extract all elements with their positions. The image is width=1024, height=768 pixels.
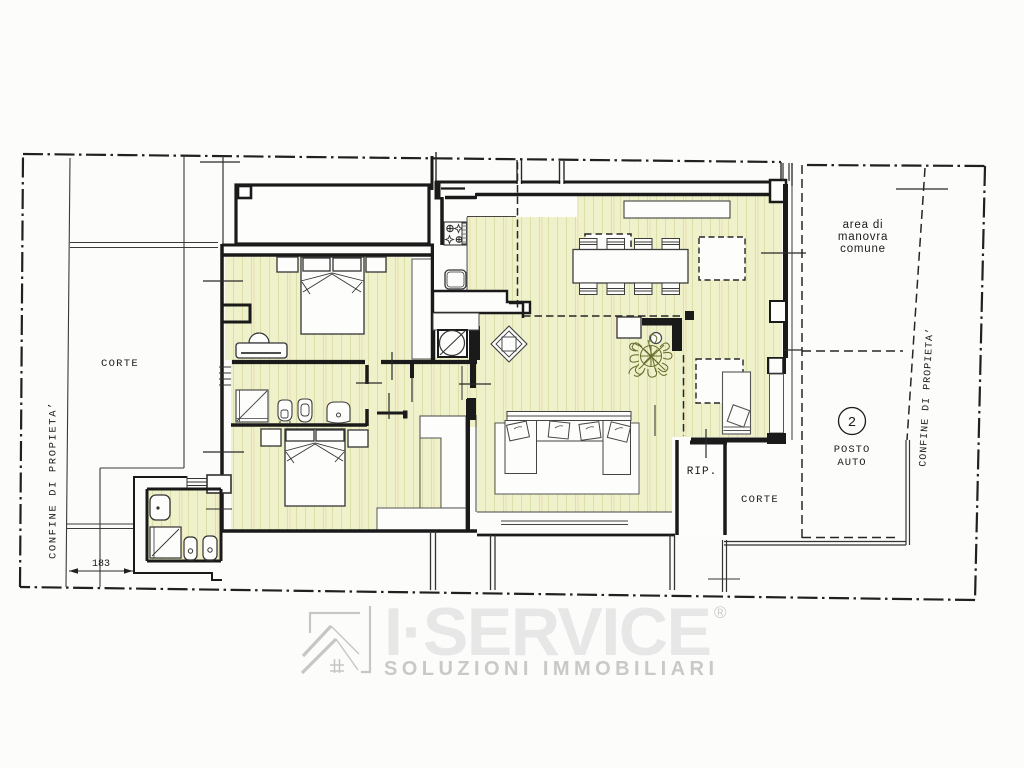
svg-text:CONFINE DI PROPIETA’: CONFINE DI PROPIETA’ bbox=[48, 401, 60, 559]
svg-text:POSTO: POSTO bbox=[834, 444, 871, 456]
svg-text:AUTO: AUTO bbox=[837, 457, 866, 469]
svg-text:comune: comune bbox=[840, 243, 886, 255]
svg-text:2: 2 bbox=[848, 415, 856, 431]
svg-text:183: 183 bbox=[92, 559, 110, 570]
svg-text:manovra: manovra bbox=[838, 231, 888, 243]
svg-text:RIP.: RIP. bbox=[687, 466, 717, 478]
svg-text:®: ® bbox=[714, 603, 727, 622]
svg-text:CORTE: CORTE bbox=[741, 494, 779, 506]
svg-text:area di: area di bbox=[843, 219, 884, 231]
svg-text:CORTE: CORTE bbox=[101, 358, 139, 370]
